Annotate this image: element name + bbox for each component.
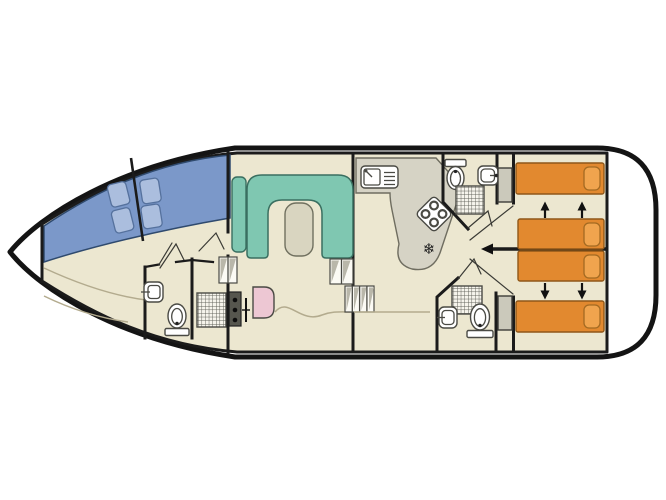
washbasin [478,166,498,185]
helm-seat [253,287,274,318]
console-knob [233,298,238,303]
boat-floor-plan: ❄ [0,0,666,500]
bed-sliding-upper [518,219,604,249]
console-knob [233,308,238,313]
wardrobe [498,296,512,330]
pillow [584,167,600,190]
console-knob [233,318,238,323]
galley-sink [361,166,398,188]
pillow [139,178,162,205]
bed-single-top [516,163,604,194]
bed-sliding-lower [518,251,604,281]
pillow [584,305,600,328]
bed-single-bottom [516,301,604,332]
shower-tray [456,186,484,214]
boat-floor-plan-page: ❄ [0,0,666,500]
wardrobe [498,168,512,202]
toilet [445,160,466,190]
steps-saloon [219,257,237,283]
pillow [140,204,162,230]
pillow [584,223,600,246]
fridge-snowflake-icon: ❄ [423,240,436,258]
washbasin [437,307,457,328]
shower-tray [197,293,226,327]
washbasin [141,282,163,302]
sofa-back-cushion [232,177,246,252]
pillow [584,255,600,278]
saloon-table [285,203,313,256]
